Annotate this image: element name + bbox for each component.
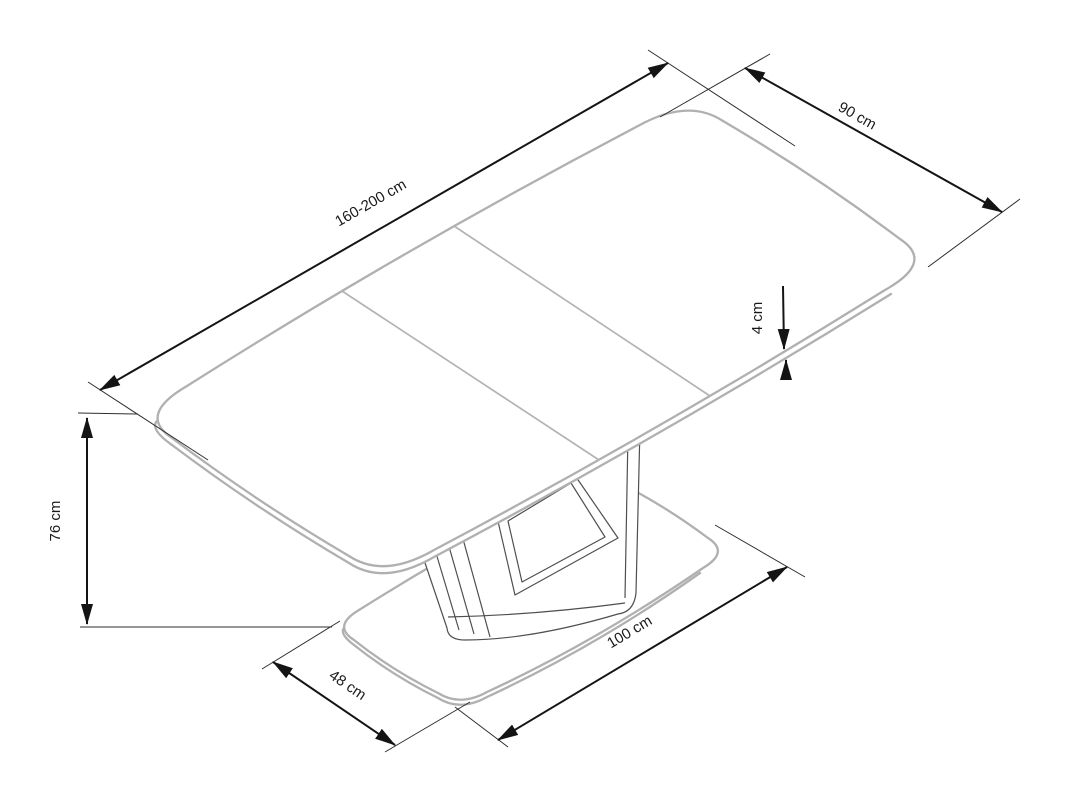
dimension-label-top-thickness: 4 cm bbox=[749, 302, 766, 335]
dimension-label-table-height: 76 cm bbox=[47, 501, 64, 542]
dimension-drawing-canvas: 160-200 cm 90 cm 4 cm 76 cm 100 cm 48 cm bbox=[0, 0, 1070, 803]
dimension-arrow-thickness-upper bbox=[783, 286, 784, 349]
